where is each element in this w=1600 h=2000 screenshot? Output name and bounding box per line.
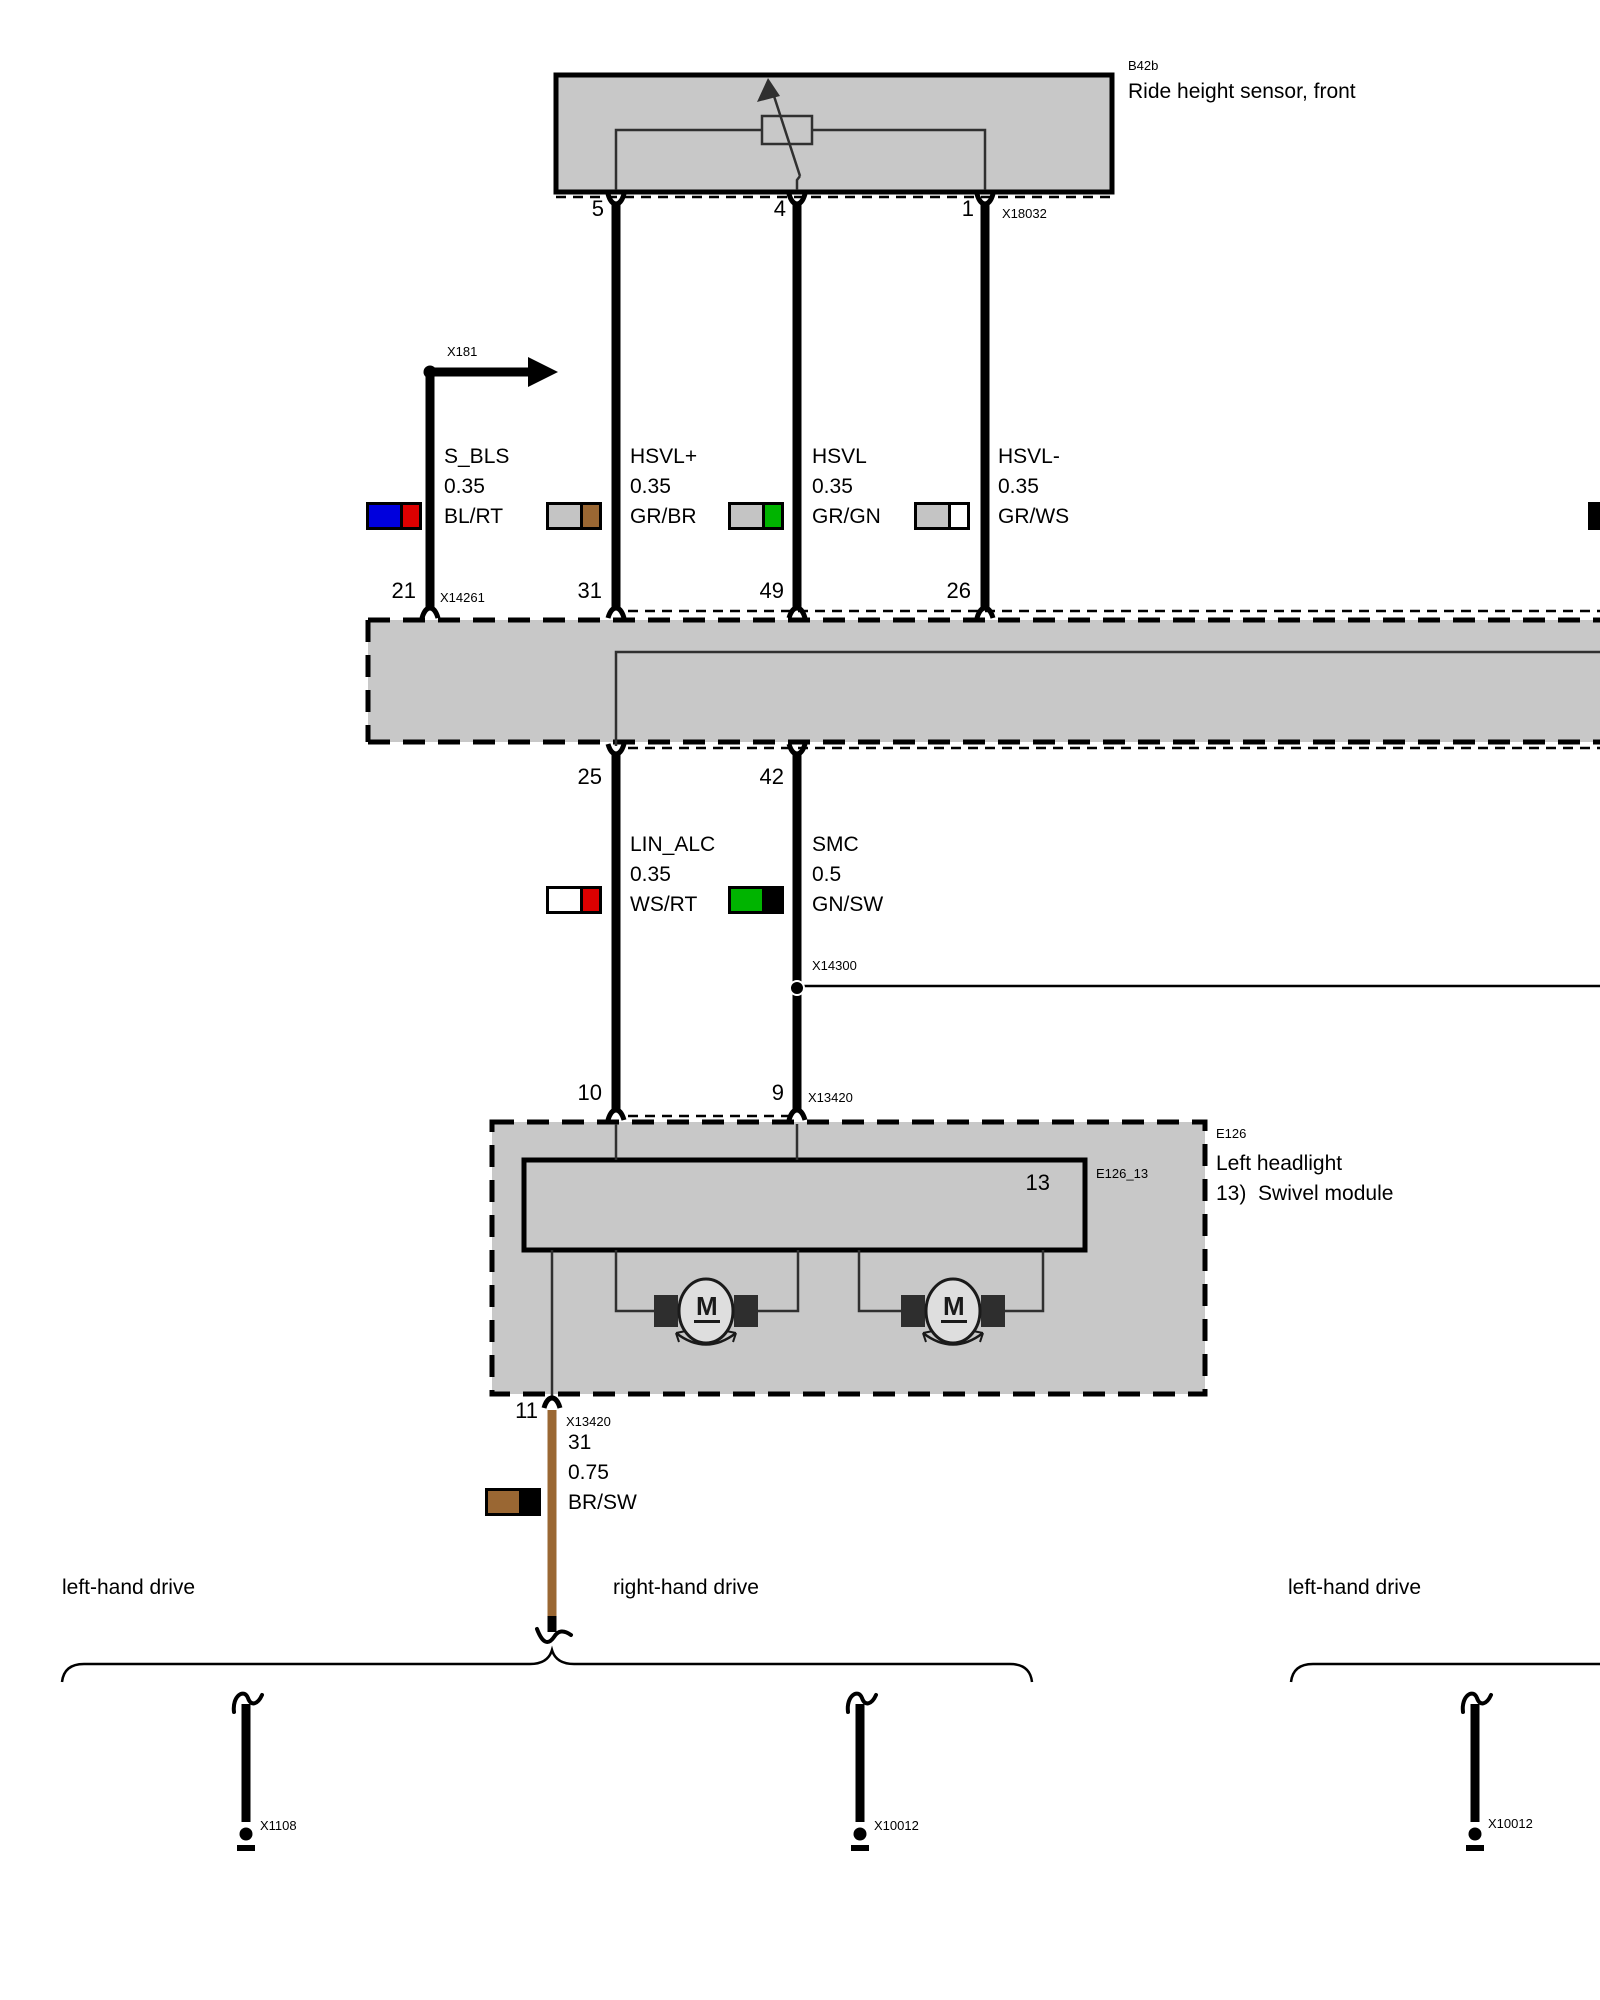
color-swatch-gn-sw (728, 886, 784, 914)
ground-bar-icon (1466, 1845, 1484, 1851)
wire-color: WS/RT (630, 890, 715, 920)
connector-label-x18032: X18032 (1002, 206, 1047, 221)
headlight-code: E126 (1216, 1126, 1246, 1141)
wire-size: 0.35 (630, 472, 697, 502)
x14300-junction (790, 981, 1600, 995)
control-module-band (368, 620, 1600, 746)
module-pin-42: 42 (740, 764, 784, 790)
wire-label-br-sw: 31 0.75 BR/SW (568, 1428, 637, 1518)
motor-m-label: M (694, 1292, 720, 1323)
connector-label-x13420-bottom: X13420 (566, 1414, 611, 1429)
color-swatch-br-sw (485, 1488, 541, 1516)
ground-drop-2 (848, 1694, 876, 1851)
harness-wires-top (430, 204, 985, 608)
color-swatch-bl-rt (366, 502, 422, 530)
ground-drop-3 (1463, 1694, 1491, 1851)
ground-bar-icon (851, 1845, 869, 1851)
connector-label-x181: X181 (447, 344, 477, 359)
color-swatch-ws-rt (546, 886, 602, 914)
brace-left-group (62, 1650, 1032, 1682)
wire-size: 0.35 (444, 472, 509, 502)
color-swatch-gr-br (546, 502, 602, 530)
module-pin-31: 31 (558, 578, 602, 604)
wire-color: BR/SW (568, 1488, 637, 1518)
headlight-pin-11: 11 (494, 1398, 538, 1424)
headlight-subtitle: 13) Swivel module (1216, 1182, 1393, 1206)
wire-size: 0.5 (812, 860, 883, 890)
module-pin-25: 25 (558, 764, 602, 790)
swivel-module-box (524, 1160, 1085, 1250)
connector-label-x13420-top: X13420 (808, 1090, 853, 1105)
variant-label-left-hand-drive: left-hand drive (62, 1576, 195, 1600)
harness-wires-mid (616, 754, 797, 1110)
ground-bar-icon (237, 1845, 255, 1851)
headlight-title: Left headlight (1216, 1152, 1342, 1176)
headlight-pin-10: 10 (558, 1080, 602, 1106)
wire-label-hsvl-plus: HSVL+ 0.35 GR/BR (630, 442, 697, 532)
submodule-pin-13: 13 (1006, 1170, 1050, 1196)
submodule-code: E126_13 (1096, 1166, 1148, 1181)
wire-color: BL/RT (444, 502, 509, 532)
brace-right-group (1291, 1664, 1600, 1682)
x181-branch-arrow (424, 357, 559, 387)
wire-size: 0.75 (568, 1458, 637, 1488)
wire-size: 0.35 (812, 472, 881, 502)
signal-name: S_BLS (444, 442, 509, 472)
color-swatch-gr-gn (728, 502, 784, 530)
wiring-diagram-page: B42b Ride height sensor, front X18032 5 … (0, 0, 1600, 2000)
signal-name: LIN_ALC (630, 830, 715, 860)
motor-m-label: M (941, 1292, 967, 1323)
wire-label-s-bls: S_BLS 0.35 BL/RT (444, 442, 509, 532)
sensor-code: B42b (1128, 58, 1158, 73)
wire-label-hsvl: HSVL 0.35 GR/GN (812, 442, 881, 532)
ride-height-sensor-box (556, 75, 1112, 192)
signal-name: HSVL+ (630, 442, 697, 472)
wire-color: GR/WS (998, 502, 1069, 532)
wire-label-smc: SMC 0.5 GN/SW (812, 830, 883, 920)
ground-label-x10012: X10012 (874, 1818, 919, 1833)
headlight-pin-9: 9 (740, 1080, 784, 1106)
connector-label-x14261: X14261 (440, 590, 485, 605)
module-pin-26: 26 (927, 578, 971, 604)
wire-color: GR/GN (812, 502, 881, 532)
sensor-pin-4: 4 (742, 196, 786, 222)
module-top-connectors (422, 608, 993, 618)
ground-label-x1108: X1108 (260, 1818, 297, 1833)
module-pin-21: 21 (372, 578, 416, 604)
ground-drop-1 (234, 1694, 262, 1851)
sensor-title: Ride height sensor, front (1128, 80, 1356, 104)
clipped-swatch-fragment (1588, 502, 1600, 530)
wire-color: GN/SW (812, 890, 883, 920)
variant-braces (62, 1650, 1600, 1682)
color-swatch-gr-ws (914, 502, 970, 530)
pin11-connector (544, 1398, 560, 1408)
signal-name: HSVL (812, 442, 881, 472)
ground-wire-brown (537, 1410, 571, 1642)
signal-name: SMC (812, 830, 883, 860)
wire-color: GR/BR (630, 502, 697, 532)
variant-label-right-hand-drive: right-hand drive (613, 1576, 759, 1600)
sensor-pin-1: 1 (930, 196, 974, 222)
connector-label-x14300: X14300 (812, 958, 857, 973)
wire-label-lin-alc: LIN_ALC 0.35 WS/RT (630, 830, 715, 920)
signal-name: 31 (568, 1428, 637, 1458)
headlight-box (492, 1122, 1205, 1398)
ground-label-x10012-2: X10012 (1488, 1816, 1533, 1831)
sensor-pin-5: 5 (560, 196, 604, 222)
wire-label-hsvl-minus: HSVL- 0.35 GR/WS (998, 442, 1069, 532)
wire-size: 0.35 (998, 472, 1069, 502)
wire-size: 0.35 (630, 860, 715, 890)
variant-label-left-hand-drive-2: left-hand drive (1288, 1576, 1421, 1600)
module-pin-49: 49 (740, 578, 784, 604)
wiring-diagram-canvas (0, 0, 1600, 2000)
signal-name: HSVL- (998, 442, 1069, 472)
